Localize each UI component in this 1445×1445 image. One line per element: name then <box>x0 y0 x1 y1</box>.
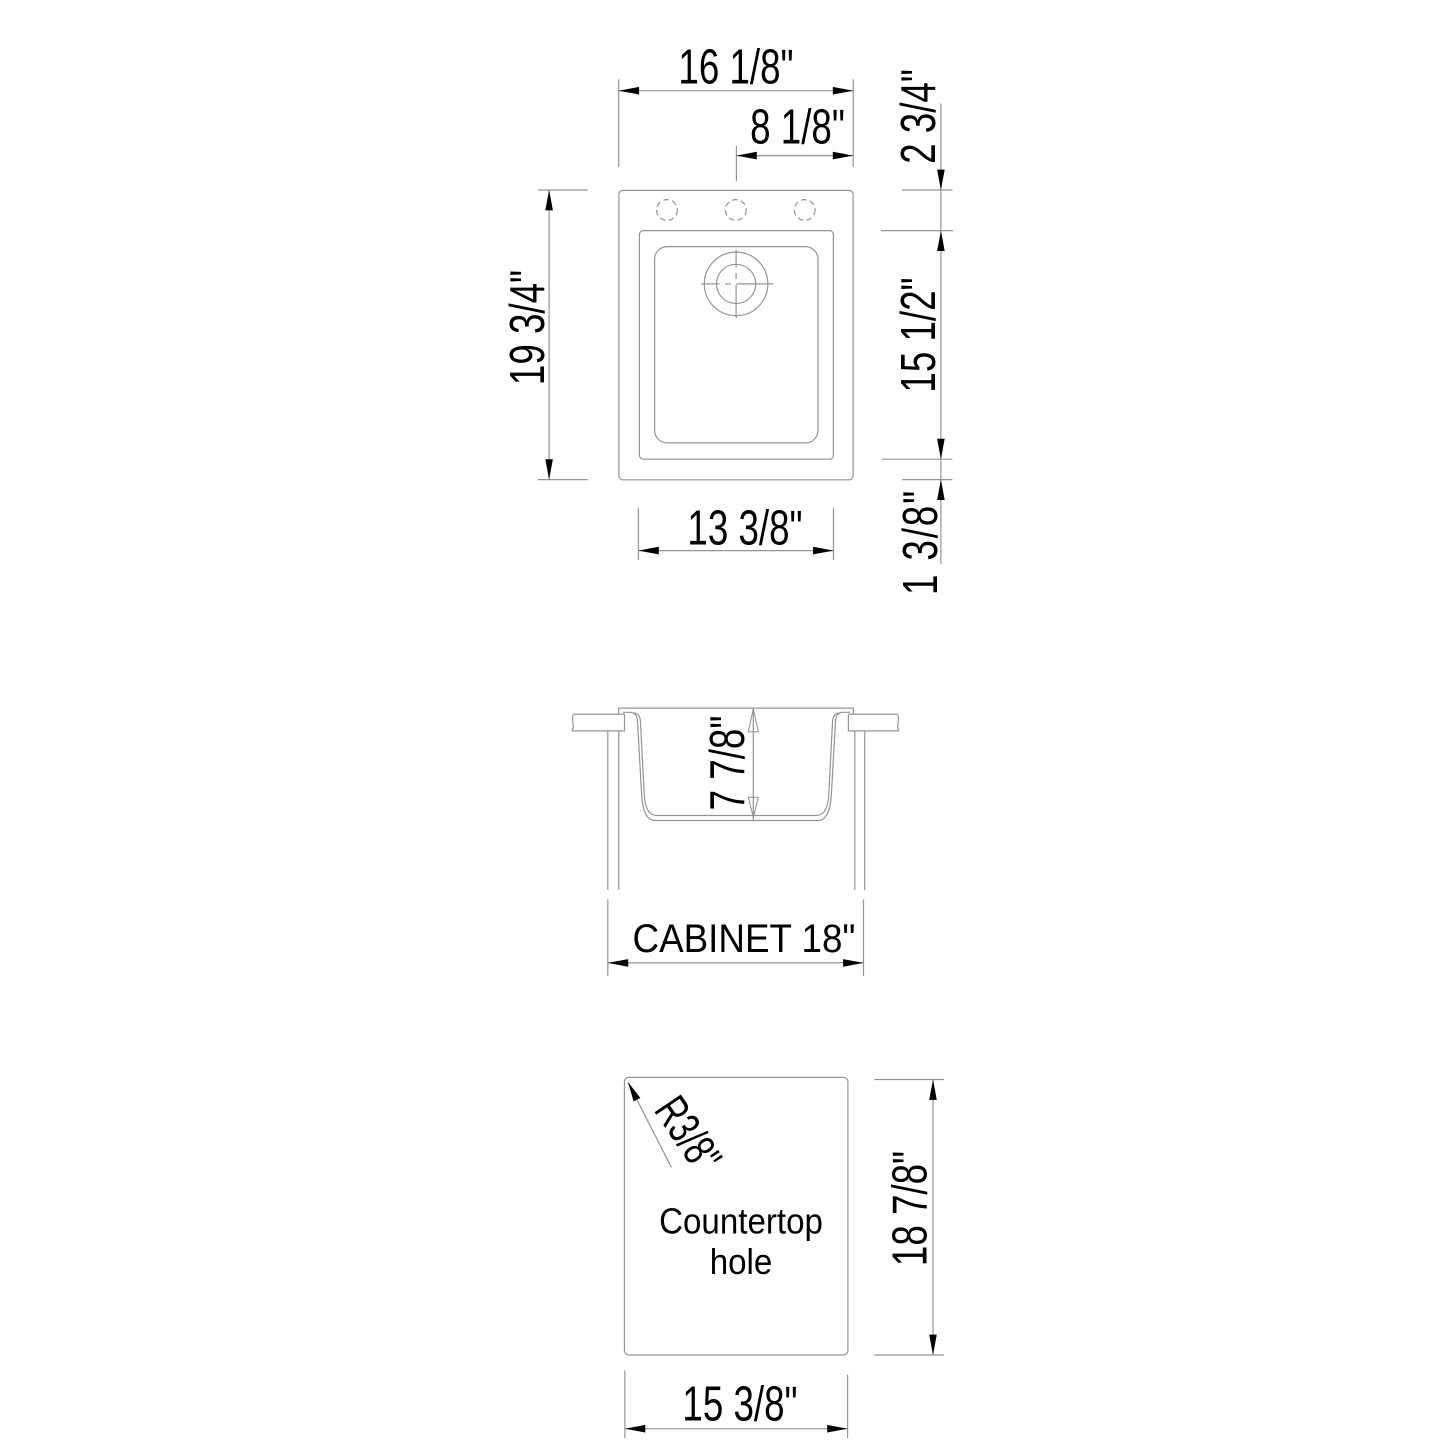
svg-text:15 1/2": 15 1/2" <box>892 277 946 392</box>
svg-text:16 1/8": 16 1/8" <box>678 41 793 95</box>
svg-text:19 3/4": 19 3/4" <box>501 270 555 385</box>
svg-text:8 1/8": 8 1/8" <box>750 101 845 155</box>
svg-text:2 3/4": 2 3/4" <box>892 69 946 164</box>
svg-text:hole: hole <box>710 1243 773 1283</box>
svg-text:Countertop: Countertop <box>659 1202 823 1242</box>
svg-text:18 7/8": 18 7/8" <box>883 1151 937 1266</box>
svg-text:7 7/8": 7 7/8" <box>701 716 755 811</box>
svg-text:CABINET 18": CABINET 18" <box>633 917 856 962</box>
svg-text:15 3/8": 15 3/8" <box>682 1377 797 1431</box>
svg-text:1 3/8": 1 3/8" <box>894 489 948 595</box>
svg-text:13 3/8": 13 3/8" <box>687 501 802 555</box>
